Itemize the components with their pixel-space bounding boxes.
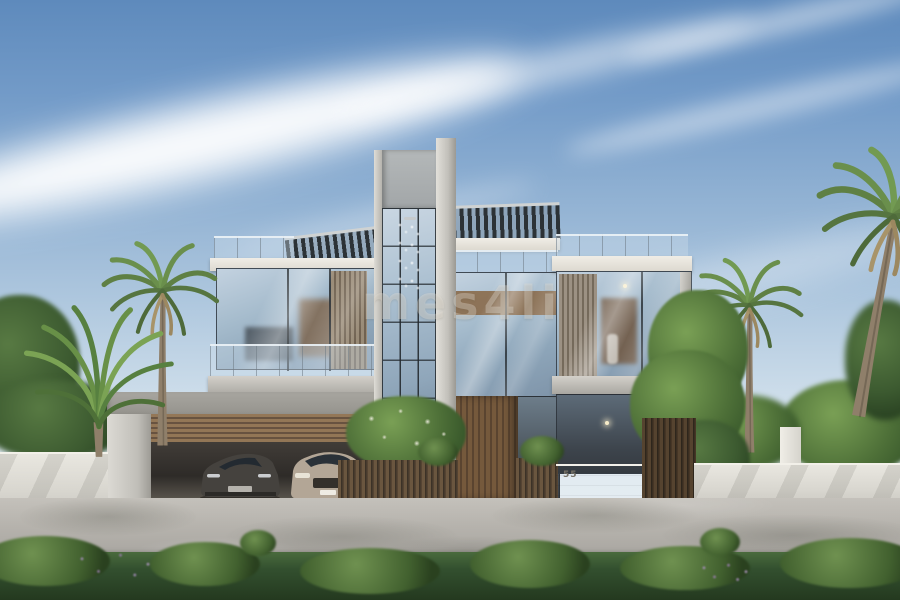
- garden-fence-left: [338, 460, 458, 502]
- architectural-render: 55 mes4li: [0, 0, 900, 600]
- flower-cluster-purple: [690, 560, 760, 586]
- sports-car: [200, 454, 280, 502]
- hedge-blob: [470, 540, 590, 588]
- rooftop-pergola-right: [451, 202, 560, 243]
- balcony-glass-railing: [210, 344, 392, 380]
- flower-cluster-purple: [60, 548, 170, 584]
- palm-tree-left-bushy: [18, 296, 180, 460]
- chandelier-canopy: [404, 217, 416, 220]
- gate-bush: [418, 438, 458, 466]
- palm-tree-corner-right: [812, 140, 900, 430]
- fascia-band-mid: [452, 238, 560, 250]
- ground-ceiling-light: [605, 421, 609, 425]
- hedge-blob: [300, 548, 440, 594]
- house-number: 55: [563, 470, 578, 480]
- fascia-band-right: [552, 256, 692, 271]
- gate-bush: [520, 436, 564, 466]
- watermark-text: mes4li: [362, 276, 562, 330]
- hedge-sprig: [700, 528, 740, 556]
- hedge-sprig: [240, 530, 276, 556]
- tower-cap: [382, 150, 436, 208]
- balcony-slab: [208, 376, 394, 393]
- garden-fence-right: [642, 418, 696, 506]
- entry-door: [456, 396, 518, 500]
